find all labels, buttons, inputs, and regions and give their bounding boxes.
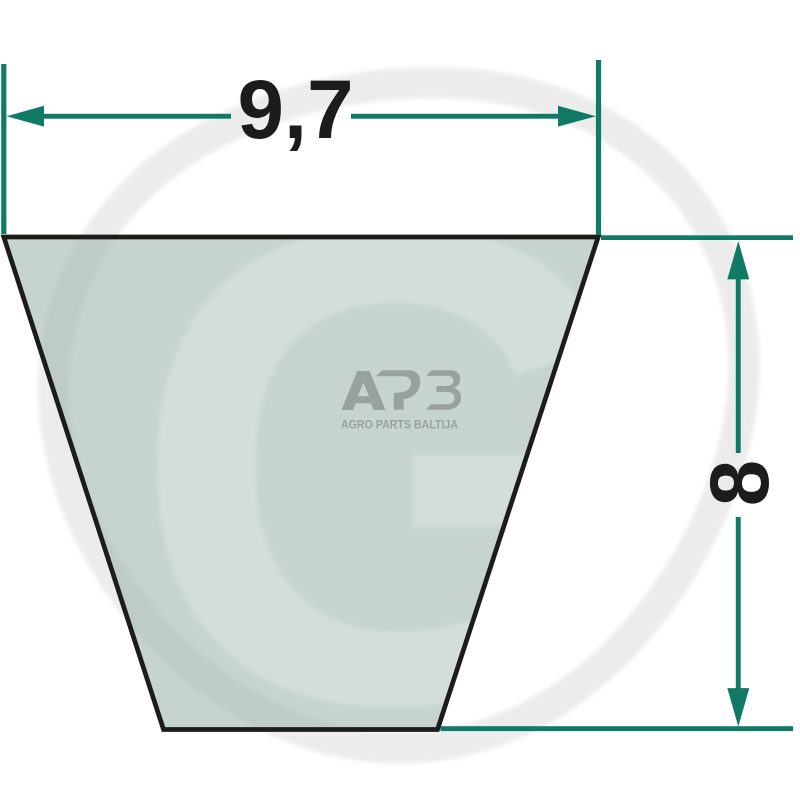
svg-text:8: 8 — [692, 460, 786, 506]
svg-text:AGRO PARTS BALTIJA: AGRO PARTS BALTIJA — [341, 417, 458, 431]
svg-text:9,7: 9,7 — [237, 62, 353, 156]
